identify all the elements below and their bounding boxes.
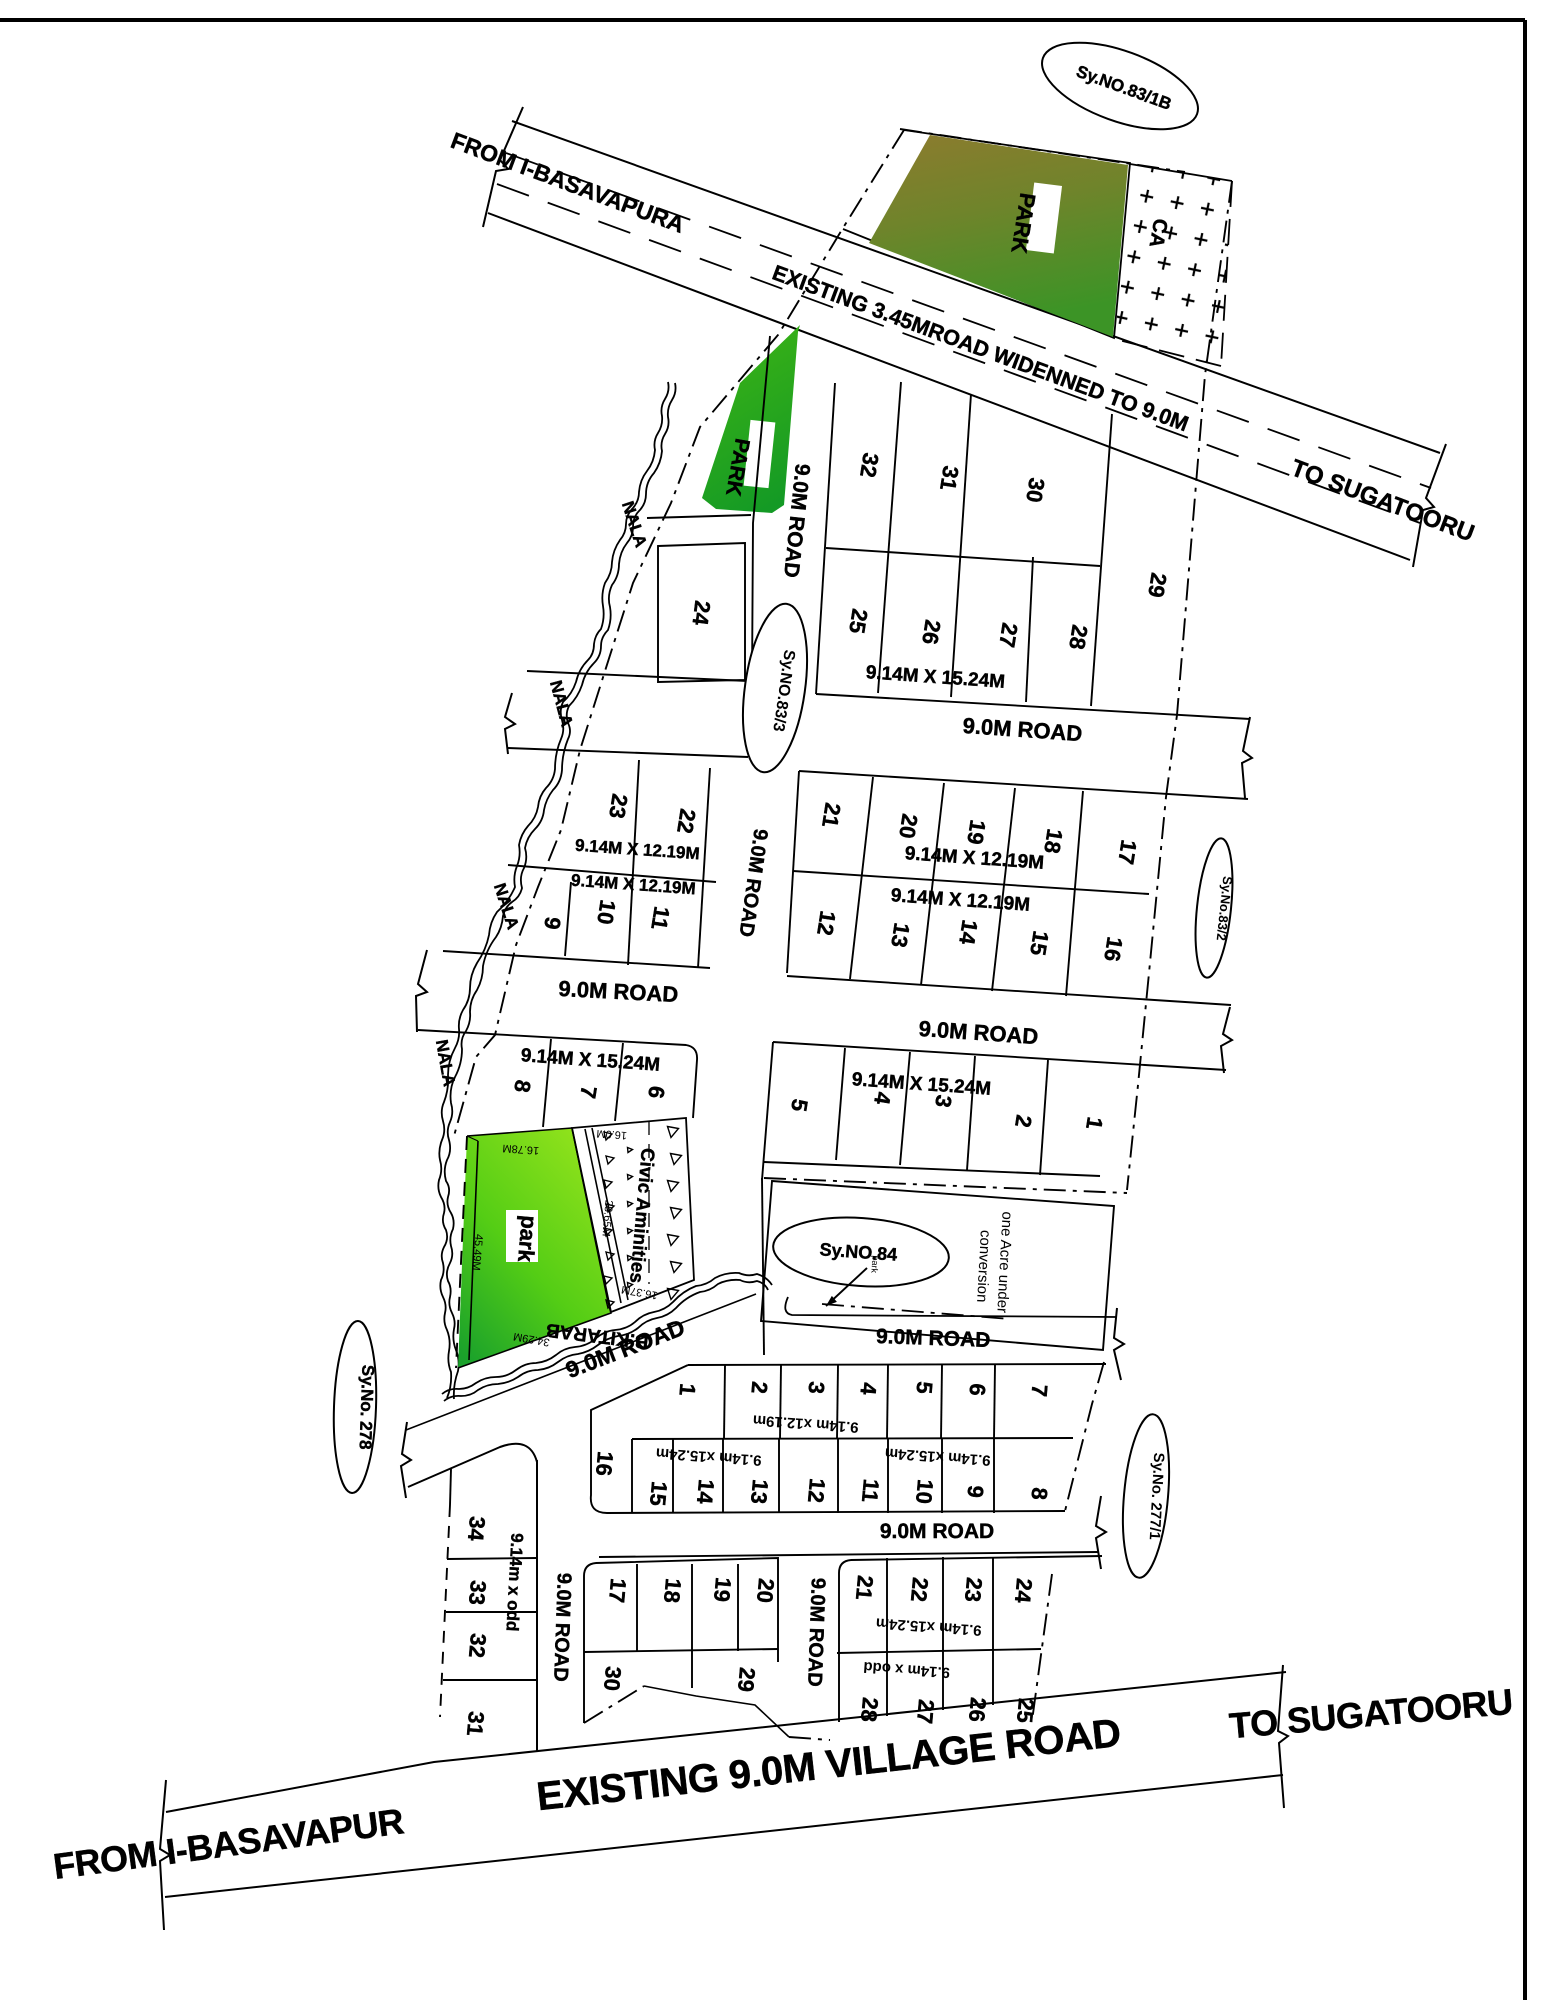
svg-text:15: 15 (645, 1480, 672, 1507)
svg-text:9.0M ROAD: 9.0M ROAD (549, 1572, 575, 1682)
svg-text:19: 19 (962, 818, 991, 846)
svg-text:park: park (513, 1214, 542, 1263)
svg-text:park: park (869, 1255, 881, 1274)
svg-text:20: 20 (752, 1577, 779, 1604)
svg-text:21: 21 (851, 1574, 878, 1601)
svg-text:18: 18 (659, 1577, 686, 1604)
svg-text:11: 11 (646, 905, 674, 932)
svg-text:1: 1 (674, 1382, 700, 1396)
svg-text:20: 20 (894, 812, 923, 840)
svg-text:19: 19 (709, 1576, 736, 1603)
svg-text:27: 27 (994, 621, 1023, 649)
svg-text:22: 22 (672, 807, 701, 835)
svg-text:16: 16 (1099, 935, 1128, 963)
svg-text:17: 17 (604, 1577, 631, 1604)
svg-text:16.78M: 16.78M (502, 1142, 539, 1157)
svg-text:9.0M ROAD: 9.0M ROAD (880, 1520, 994, 1543)
svg-text:25: 25 (844, 607, 873, 635)
svg-text:29: 29 (733, 1666, 760, 1693)
svg-text:30: 30 (1021, 476, 1050, 504)
svg-text:26: 26 (964, 1696, 991, 1723)
svg-text:14: 14 (954, 918, 983, 947)
svg-text:7: 7 (1026, 1383, 1052, 1397)
svg-text:3: 3 (803, 1380, 829, 1394)
svg-text:31: 31 (462, 1710, 489, 1737)
svg-text:18: 18 (1039, 827, 1068, 855)
svg-text:12: 12 (812, 909, 841, 937)
svg-text:6: 6 (964, 1382, 990, 1396)
svg-text:23: 23 (960, 1576, 987, 1603)
svg-text:31: 31 (935, 464, 964, 492)
svg-text:12: 12 (803, 1477, 830, 1504)
svg-text:11: 11 (857, 1478, 884, 1503)
svg-text:16: 16 (591, 1450, 618, 1477)
svg-text:9.0M ROAD: 9.0M ROAD (876, 1325, 991, 1352)
svg-text:29: 29 (1143, 571, 1172, 599)
svg-text:14: 14 (692, 1478, 719, 1505)
svg-text:33: 33 (464, 1579, 491, 1606)
svg-text:24: 24 (1010, 1577, 1037, 1604)
svg-text:32: 32 (855, 451, 884, 479)
svg-text:28: 28 (1064, 623, 1093, 651)
svg-text:24: 24 (687, 599, 715, 627)
svg-text:30: 30 (599, 1665, 626, 1692)
svg-text:21: 21 (817, 801, 846, 829)
svg-text:28: 28 (856, 1696, 883, 1723)
svg-text:13: 13 (886, 921, 915, 949)
svg-text:2: 2 (746, 1380, 772, 1394)
svg-text:32: 32 (464, 1632, 491, 1659)
svg-text:10: 10 (911, 1478, 938, 1505)
svg-text:13: 13 (746, 1478, 773, 1505)
svg-text:10: 10 (592, 898, 621, 926)
svg-text:23: 23 (604, 792, 633, 820)
svg-text:9.0M ROAD: 9.0M ROAD (803, 1577, 829, 1687)
svg-text:17: 17 (1113, 838, 1142, 866)
svg-text:26: 26 (917, 618, 946, 646)
svg-text:15: 15 (1025, 929, 1054, 957)
svg-text:5: 5 (911, 1380, 937, 1394)
svg-text:34: 34 (463, 1515, 490, 1542)
svg-text:8: 8 (1026, 1486, 1052, 1500)
svg-text:9: 9 (962, 1484, 988, 1498)
svg-text:Sy.No. 278: Sy.No. 278 (356, 1365, 378, 1450)
svg-text:22: 22 (906, 1576, 933, 1603)
